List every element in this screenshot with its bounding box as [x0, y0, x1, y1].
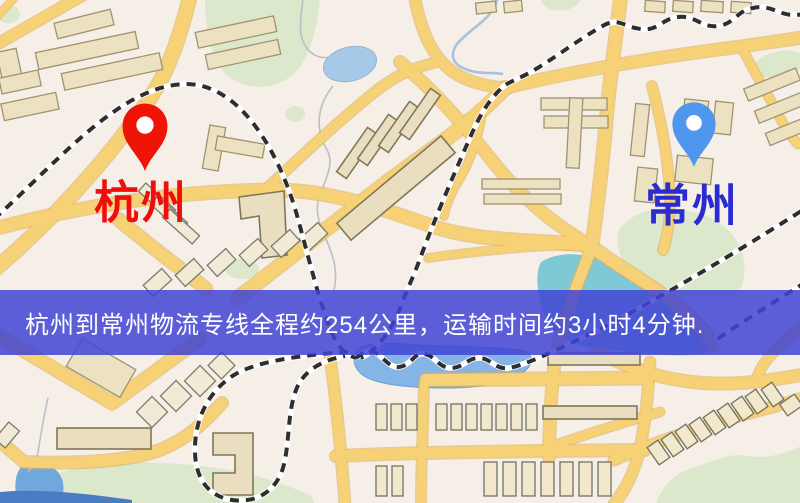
origin-city-label: 杭州	[94, 180, 188, 225]
map-canvas: 杭州 常州 杭州到常州物流专线全程约254公里，运输时间约3小时4分钟.	[0, 0, 800, 503]
route-info-banner: 杭州到常州物流专线全程约254公里，运输时间约3小时4分钟.	[0, 290, 800, 355]
street-map	[0, 0, 800, 503]
red-pin-icon	[123, 104, 168, 171]
lake	[320, 41, 381, 87]
destination-city-label: 常州	[645, 183, 739, 228]
route-info-text: 杭州到常州物流专线全程约254公里，运输时间约3小时4分钟.	[0, 305, 704, 340]
origin-pin[interactable]	[123, 104, 168, 171]
